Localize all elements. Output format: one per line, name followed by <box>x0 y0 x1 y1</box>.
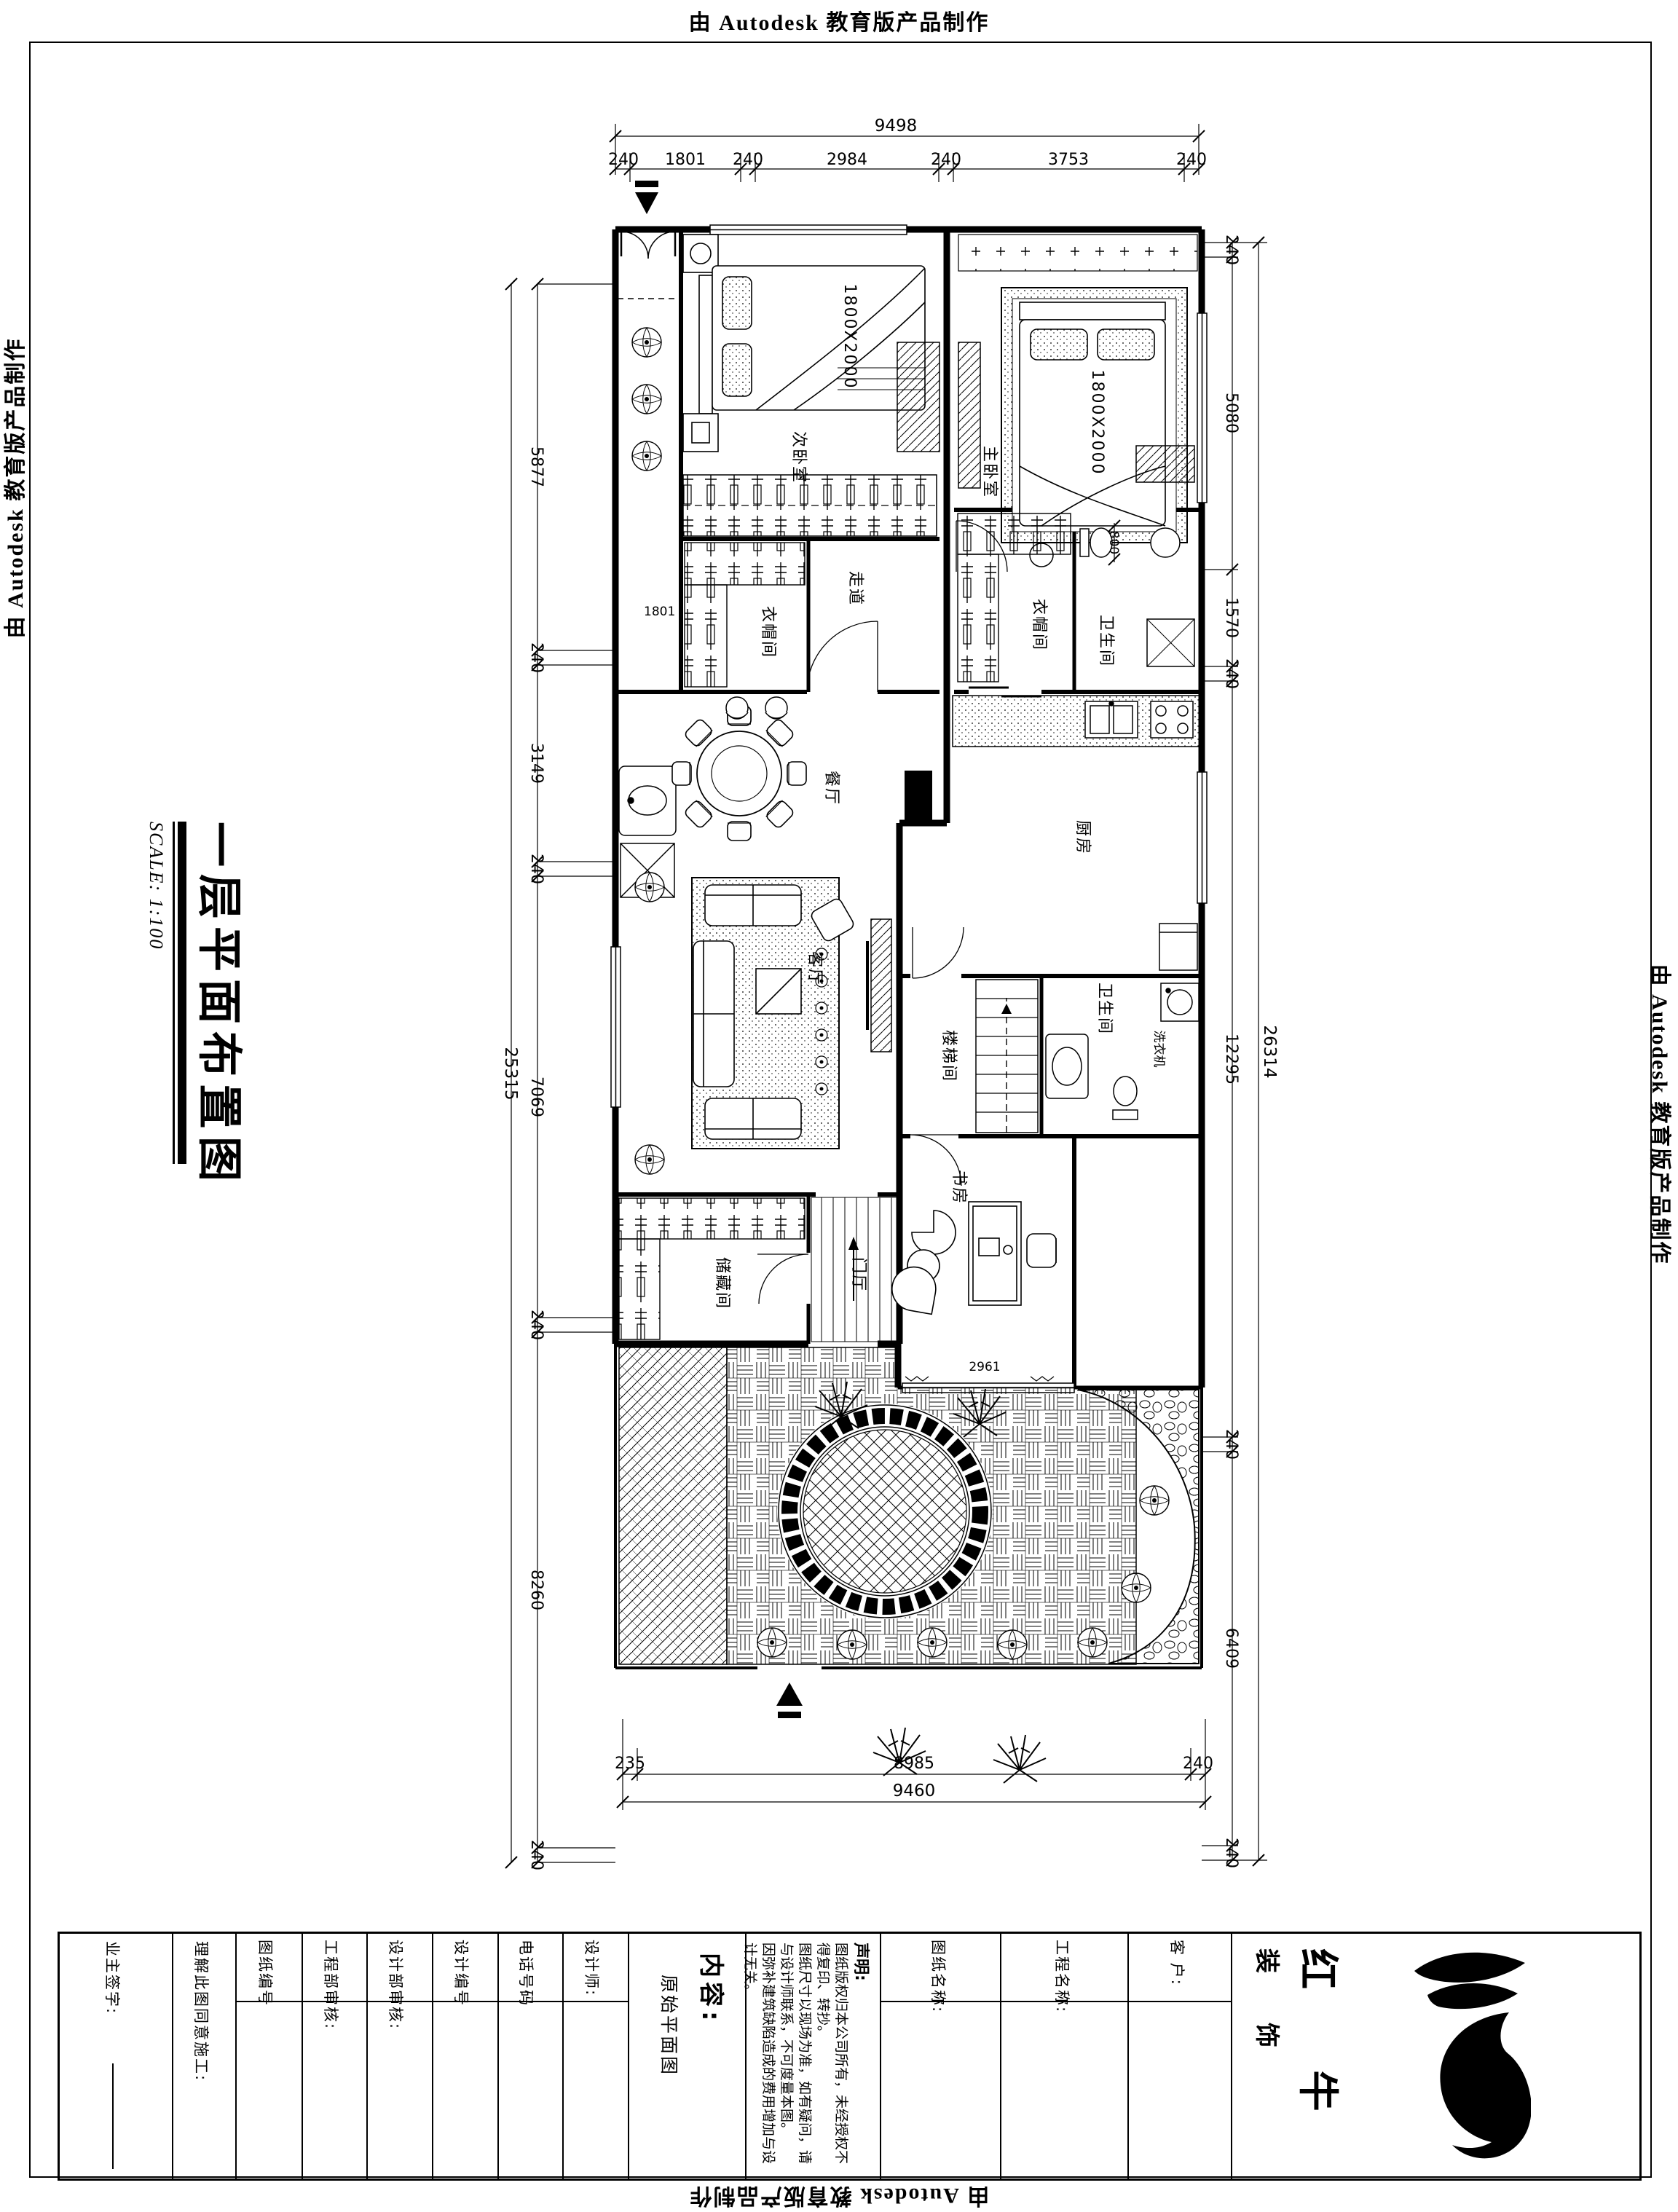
svg-text:8260: 8260 <box>527 1570 545 1610</box>
svg-text:240: 240 <box>733 151 763 169</box>
svg-text:240: 240 <box>608 151 639 169</box>
svg-text:3753: 3753 <box>1048 151 1089 169</box>
room-label-cloak2: 衣帽间 <box>1030 599 1048 651</box>
living-plant-2 <box>635 1145 664 1174</box>
svg-text:2984: 2984 <box>827 151 867 169</box>
room-label-master: 主卧室 <box>980 446 998 498</box>
entry-arrow-top <box>635 181 658 214</box>
tb-divider <box>880 1934 881 2178</box>
room-study: 书房 2961 <box>889 1135 1056 1374</box>
tb-divider <box>562 1934 564 2178</box>
room-storage: 储藏间 <box>619 1198 808 1339</box>
room-label-dining: 餐厅 <box>822 771 840 806</box>
svg-text:240: 240 <box>1222 658 1240 689</box>
dim-bath: 800 <box>1106 531 1121 554</box>
room-label-storage: 储藏间 <box>713 1257 731 1310</box>
svg-text:240: 240 <box>1176 151 1207 169</box>
svg-text:240: 240 <box>527 1310 545 1340</box>
garden <box>619 1347 1199 1783</box>
field-drawing-name: 图纸名称: <box>928 1940 950 2013</box>
bed2-size: 1800X2000 <box>840 283 859 389</box>
room-label-laundry: 洗衣机 <box>1151 1031 1166 1068</box>
tb-divider <box>235 1934 237 2178</box>
room-label-corridor: 走道 <box>846 571 864 606</box>
floor-plan: 9498 240 1801 240 2984 240 3753 240 235 … <box>466 58 1340 1923</box>
statement-line: 因弥补建筑缺陷造成的费用增加与设计无关。 <box>741 1943 777 2170</box>
svg-text:240: 240 <box>527 1840 545 1870</box>
field-owner-sign: 业主签字: <box>102 1941 124 2015</box>
tb-divider <box>432 1934 433 2178</box>
dim-study: 2961 <box>969 1360 1000 1374</box>
dim-left-overall: 25315 <box>501 1047 520 1100</box>
room-label-living: 客厅 <box>805 951 824 986</box>
tb-divider <box>628 1934 629 2178</box>
dim-bottom-overall: 9460 <box>893 1782 936 1800</box>
statement-line: 图纸尺寸以现场为准，如有疑问，请与设计师联系，不可度量本图。 <box>777 1943 814 2170</box>
room-label-kitchen: 厨房 <box>1074 820 1092 855</box>
statement-title: 声明: <box>851 1943 870 2170</box>
svg-text:7069: 7069 <box>527 1077 545 1117</box>
bay-window-seat <box>958 235 1197 271</box>
dim-right-overall: 26314 <box>1260 1025 1279 1078</box>
tb-label-divider <box>235 2001 628 2002</box>
content-value: 原始平面图 <box>657 1975 683 2077</box>
svg-text:6409: 6409 <box>1222 1628 1240 1669</box>
field-design-review: 设计部审核: <box>385 1940 407 2030</box>
svg-text:240: 240 <box>527 642 545 673</box>
room-living: 客厅 <box>635 873 891 1174</box>
svg-text:5080: 5080 <box>1222 393 1240 433</box>
dim-side: 1801 <box>644 605 675 619</box>
svg-text:12295: 12295 <box>1222 1034 1240 1085</box>
living-plant-1 <box>635 873 664 902</box>
field-project-name: 工程名称: <box>1052 1940 1074 2013</box>
master-tv-wall <box>958 342 980 488</box>
field-eng-review: 工程部审核: <box>320 1940 342 2030</box>
entry-porch <box>618 181 679 299</box>
garden-path <box>619 1347 727 1664</box>
svg-text:1570: 1570 <box>1222 597 1240 638</box>
svg-text:240: 240 <box>1222 1838 1240 1868</box>
drawing-scale: SCALE: 1:100 <box>145 822 167 1164</box>
autodesk-banner-left: 由 Autodesk 教育版产品制作 <box>0 338 29 639</box>
room-label-foyer: 门厅 <box>849 1257 867 1292</box>
room-bath2: 卫生间 洗衣机 <box>1046 983 1199 1119</box>
master-bed-size: 1800X2000 <box>1088 369 1106 475</box>
field-drawing-no: 图纸编号 <box>255 1940 277 2007</box>
room-label-study: 书房 <box>950 1170 968 1205</box>
field-phone: 电话号码 <box>516 1940 537 2007</box>
field-agree: 理解此图同意施工: <box>191 1941 213 2082</box>
field-client: 客 户: <box>1167 1940 1189 1986</box>
drawing-sheet: 由 Autodesk 教育版产品制作 由 Autodesk 教育版产品制作 由 … <box>0 0 1678 2212</box>
brand-name: 红 牛 装 饰 <box>1251 1948 1350 2145</box>
tv-partition <box>871 919 891 1052</box>
drawing-title: 一层平面布置图 SCALE: 1:100 <box>145 822 256 1164</box>
statement-line: 图纸版权归本公司所有，未经授权不得复印、转抄。 <box>814 1943 850 2170</box>
svg-text:240: 240 <box>931 151 961 169</box>
room-label-stair: 楼梯间 <box>940 1030 958 1082</box>
brand-line1: 红 牛 <box>1291 1948 1350 2145</box>
tb-divider <box>1127 1934 1129 2178</box>
tb-divider <box>1000 1934 1001 2178</box>
tb-divider <box>302 1934 303 2178</box>
owner-sign-line <box>112 2063 114 2169</box>
content-label: 内容: <box>696 1953 731 2026</box>
svg-text:240: 240 <box>1183 1755 1213 1773</box>
room-stair: 楼梯间 <box>913 927 1038 1133</box>
field-designer: 设计师: <box>581 1940 603 1996</box>
flue <box>905 771 932 823</box>
garden-gate-arrow <box>776 1682 803 1718</box>
room-label-bath1: 卫生间 <box>1097 615 1115 667</box>
tb-divider <box>1231 1934 1232 2178</box>
svg-text:1801: 1801 <box>665 151 706 169</box>
svg-text:240: 240 <box>1222 1429 1240 1460</box>
svg-text:240: 240 <box>527 854 545 884</box>
tb-divider <box>497 1934 499 2178</box>
svg-text:235: 235 <box>615 1755 645 1773</box>
room-label-cloak1: 衣帽间 <box>759 606 777 658</box>
title-underline <box>173 822 175 1164</box>
tb-divider <box>366 1934 368 2178</box>
dim-top-overall: 9498 <box>875 117 918 135</box>
title-block: 业主签字: 理解此图同意施工: 图纸编号 工程部审核: 设计部审核: 设计编号 … <box>58 1932 1642 2181</box>
bull-logo <box>1363 1938 1531 2171</box>
svg-text:240: 240 <box>1222 235 1240 265</box>
statement: 声明: 图纸版权归本公司所有，未经授权不得复印、转抄。 图纸尺寸以现场为准，如有… <box>741 1943 870 2170</box>
autodesk-banner-top: 由 Autodesk 教育版产品制作 <box>689 4 990 36</box>
svg-text:3149: 3149 <box>527 743 545 784</box>
field-design-no: 设计编号 <box>451 1940 473 2007</box>
drawing-title-text: 一层平面布置图 <box>178 822 256 1164</box>
garden-circle <box>777 1404 993 1619</box>
room-bed2: 1800X2000 次卧室 <box>683 235 940 536</box>
room-kitchen: 厨房 <box>953 688 1200 970</box>
tb-divider <box>172 1934 173 2178</box>
autodesk-banner-bottom: 由 Autodesk 教育版产品制作 <box>689 2182 990 2212</box>
side-yard: 1801 <box>619 328 676 897</box>
svg-text:5877: 5877 <box>527 446 545 487</box>
room-label-bath2: 卫生间 <box>1095 983 1114 1035</box>
brand-line2: 装 饰 <box>1251 1948 1287 2145</box>
room-foyer: 门厅 <box>811 1197 897 1342</box>
